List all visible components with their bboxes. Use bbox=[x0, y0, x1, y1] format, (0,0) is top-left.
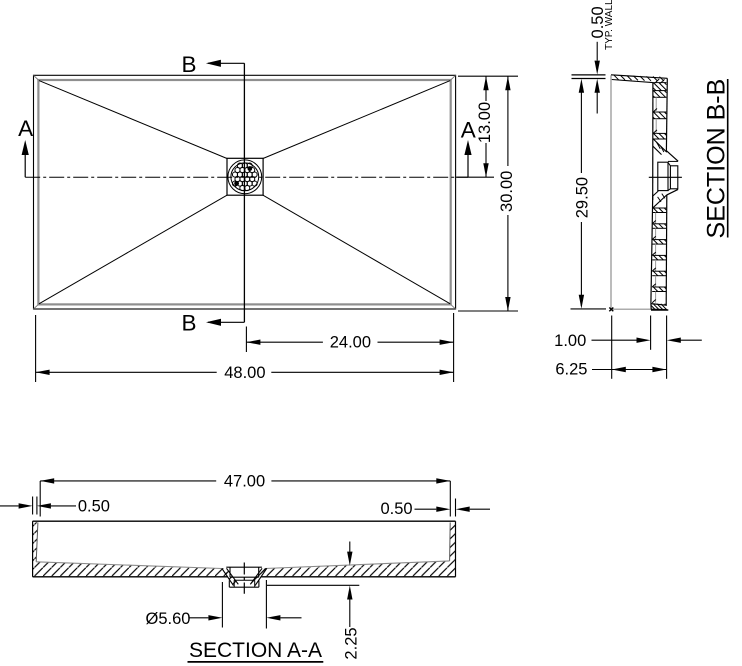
svg-text:6.25: 6.25 bbox=[555, 361, 587, 379]
svg-text:Ø5.60: Ø5.60 bbox=[146, 610, 191, 628]
svg-text:A: A bbox=[461, 117, 476, 142]
svg-text:24.00: 24.00 bbox=[330, 333, 371, 351]
svg-text:SECTION A-A: SECTION A-A bbox=[189, 639, 322, 662]
svg-text:30.00: 30.00 bbox=[498, 171, 516, 212]
svg-text:SECTION B-B: SECTION B-B bbox=[703, 79, 731, 239]
svg-text:0.50: 0.50 bbox=[380, 500, 412, 518]
svg-text:A: A bbox=[18, 116, 33, 141]
svg-text:TYP. WALL: TYP. WALL bbox=[604, 0, 615, 50]
svg-text:1.00: 1.00 bbox=[554, 332, 586, 350]
svg-text:48.00: 48.00 bbox=[224, 364, 265, 382]
svg-text:B: B bbox=[181, 52, 196, 77]
svg-text:13.00: 13.00 bbox=[476, 102, 494, 143]
svg-text:2.25: 2.25 bbox=[343, 627, 361, 659]
svg-text:29.50: 29.50 bbox=[574, 177, 592, 218]
svg-text:47.00: 47.00 bbox=[224, 473, 265, 491]
svg-text:B: B bbox=[181, 311, 196, 336]
svg-text:0.50: 0.50 bbox=[78, 498, 110, 516]
